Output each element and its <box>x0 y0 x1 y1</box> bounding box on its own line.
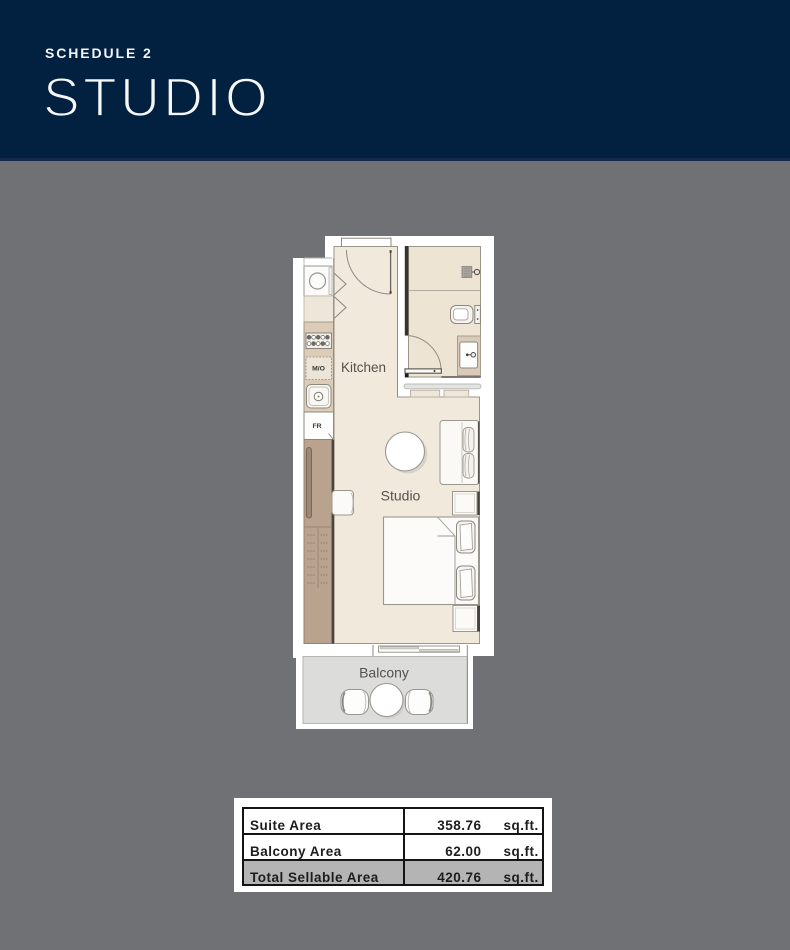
svg-text:Balcony: Balcony <box>359 665 409 681</box>
svg-text:M/O: M/O <box>312 366 325 373</box>
svg-text:Studio: Studio <box>381 488 421 504</box>
svg-text:FR: FR <box>312 423 321 430</box>
svg-text:Kitchen: Kitchen <box>341 360 386 375</box>
